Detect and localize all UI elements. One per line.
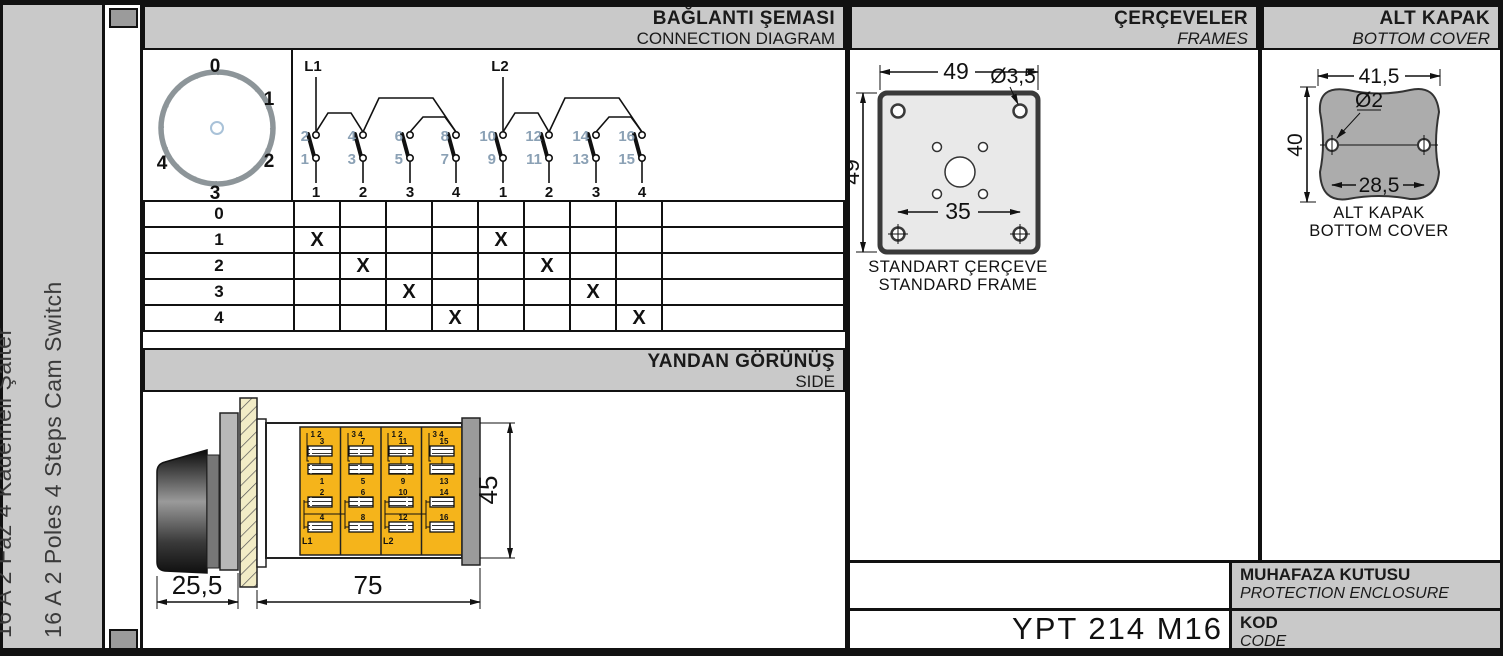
terminal	[349, 446, 373, 456]
frame-caption-tr: STANDART ÇERÇEVE	[868, 258, 1047, 276]
dim-75: 75	[354, 570, 383, 600]
frames-title-tr: ÇERÇEVELER	[852, 8, 1248, 29]
terminal	[308, 497, 332, 507]
terminal	[389, 464, 413, 474]
dim-40: 40	[1284, 133, 1307, 156]
svg-text:8: 8	[361, 513, 366, 522]
contact-schematic: L1 L2 2 1 1 4 3 2 6 5 3 8 7 4	[293, 50, 845, 200]
pilot-hole	[933, 190, 942, 199]
bridge-l1-mid	[410, 117, 456, 132]
bottom-cover-title-en: BOTTOM COVER	[1264, 29, 1490, 48]
bottom-cover-drawing: 41,5 Ø2 40 28,5 ALT KAPAK BOTTOM COVER	[1262, 60, 1500, 260]
code-label-cell: KOD CODE	[1232, 611, 1500, 648]
terminal	[308, 522, 332, 532]
svg-text:13: 13	[440, 477, 449, 486]
svg-text:15: 15	[440, 437, 449, 446]
table-row: 2XX	[144, 253, 844, 279]
dial-pos-3: 3	[210, 183, 221, 200]
dial-pos-0: 0	[210, 56, 221, 77]
step-label: 4	[452, 184, 461, 200]
dim-25-5: 25,5	[172, 570, 223, 600]
cover-caption-en: BOTTOM COVER	[1309, 222, 1449, 240]
table-row: 3XX	[144, 279, 844, 305]
step-label: 2	[545, 184, 553, 200]
binding-mark-bottom	[109, 629, 138, 650]
terminal-label: 12	[525, 128, 542, 145]
feed-label-l1: L1	[304, 58, 322, 75]
svg-text:1: 1	[320, 477, 325, 486]
bridge-l1-high	[363, 98, 456, 132]
svg-text:2: 2	[320, 488, 325, 497]
side-view-drawing: 1 2 3 1 2 4 L1 3 4 7 5 6 8	[143, 392, 845, 648]
corner-hole	[1014, 105, 1027, 118]
dial-diagram: 0 1 2 3 4	[143, 50, 293, 200]
svg-text:L1: L1	[302, 536, 313, 546]
step-table: 0 1XX 2XX 3XX 4XX	[143, 200, 845, 332]
bottom-cover-header: ALT KAPAK BOTTOM COVER	[1262, 5, 1500, 50]
step-label: 2	[359, 184, 367, 200]
svg-text:7: 7	[361, 437, 366, 446]
connection-title-en: CONNECTION DIAGRAM	[145, 29, 835, 48]
svg-text:5: 5	[361, 477, 366, 486]
dim-28-5: 28,5	[1359, 174, 1400, 197]
terminal-label: 9	[488, 151, 496, 168]
dial-face	[164, 75, 270, 181]
frames-header: ÇERÇEVELER FRAMES	[850, 5, 1258, 50]
connection-title-tr: BAĞLANTI ŞEMASI	[145, 8, 835, 29]
terminal	[349, 522, 373, 532]
switch-knob	[157, 450, 207, 573]
svg-text:16: 16	[440, 513, 449, 522]
enclosure-label-tr: MUHAFAZA KUTUSU	[1240, 565, 1500, 585]
dial-pos-1: 1	[264, 89, 275, 110]
terminal-label: 3	[348, 151, 356, 168]
terminal	[349, 497, 373, 507]
frames-title-en: FRAMES	[852, 29, 1248, 48]
terminal	[430, 446, 454, 456]
dial-pos-4: 4	[157, 153, 168, 174]
terminal-label: 8	[441, 128, 449, 145]
terminal	[349, 464, 373, 474]
center-hole	[945, 157, 975, 187]
step-label: 3	[592, 184, 600, 200]
datasheet-page: 16 A 2 Faz 4 Kademeli Şalter 16 A 2 Pole…	[0, 0, 1503, 656]
frame-caption-en: STANDARD FRAME	[879, 276, 1038, 294]
terminal-label: 16	[618, 128, 635, 145]
frame-drawing: 49 Ø3,5 49 35 STANDART ÇERÇEVE STANDARD …	[850, 60, 1258, 305]
side-view-title-tr: YANDAN GÖRÜNÜŞ	[145, 351, 835, 372]
terminal-label: 1	[301, 151, 309, 168]
terminal	[389, 446, 413, 456]
terminal-label: 10	[479, 128, 496, 145]
terminal-label: 6	[395, 128, 403, 145]
dial-pos-2: 2	[264, 151, 275, 172]
table-row: 1XX	[144, 227, 844, 253]
table-row: 4XX	[144, 305, 844, 331]
svg-text:3: 3	[320, 437, 325, 446]
code-label-en: CODE	[1240, 633, 1500, 651]
enclosure-cell: MUHAFAZA KUTUSU PROTECTION ENCLOSURE	[1232, 563, 1500, 608]
terminal-label: 11	[526, 151, 542, 168]
svg-text:11: 11	[399, 437, 408, 446]
step-label: 1	[312, 184, 320, 200]
terminal	[308, 446, 332, 456]
dim-hole-dia: Ø3,5	[990, 65, 1036, 88]
step-label: 3	[406, 184, 414, 200]
code-value: YPT 214 M16	[850, 611, 1229, 648]
terminal	[430, 497, 454, 507]
terminal-label: 2	[301, 128, 309, 145]
product-title-tr: 16 A 2 Faz 4 Kademeli Şalter	[0, 327, 17, 638]
terminal-label: 14	[572, 128, 589, 145]
bridge-l2-high	[549, 98, 642, 132]
terminal	[430, 464, 454, 474]
side-view-header: YANDAN GÖRÜNÜŞ SIDE	[143, 348, 845, 392]
product-title-en: 16 A 2 Poles 4 Steps Cam Switch	[40, 281, 67, 638]
svg-text:L2: L2	[383, 536, 394, 546]
dim-35: 35	[945, 198, 971, 224]
connection-header: BAĞLANTI ŞEMASI CONNECTION DIAGRAM	[143, 5, 845, 50]
terminal-label: 4	[348, 128, 357, 145]
svg-text:10: 10	[399, 488, 408, 497]
dim-49-top: 49	[943, 60, 969, 84]
bottom-cover-title-tr: ALT KAPAK	[1264, 8, 1490, 29]
step-label: 1	[499, 184, 507, 200]
svg-text:14: 14	[440, 488, 449, 497]
pilot-hole	[933, 143, 942, 152]
frame-spacer	[257, 419, 266, 567]
enclosure-label-en: PROTECTION ENCLOSURE	[1240, 585, 1500, 603]
terminal-label: 15	[618, 151, 635, 168]
knob-collar	[207, 455, 219, 568]
terminal	[389, 497, 413, 507]
pilot-hole	[979, 143, 988, 152]
terminal	[430, 522, 454, 532]
side-view-title-en: SIDE	[145, 372, 835, 391]
step-label: 4	[638, 184, 647, 200]
dim-45: 45	[473, 476, 503, 505]
pilot-hole	[979, 190, 988, 199]
terminal	[308, 464, 332, 474]
terminal	[389, 522, 413, 532]
svg-text:6: 6	[361, 488, 366, 497]
code-label-tr: KOD	[1240, 613, 1500, 633]
svg-text:9: 9	[401, 477, 406, 486]
mounting-panel	[240, 398, 257, 587]
dim-hole-dia: Ø2	[1355, 89, 1383, 112]
terminal-label: 13	[572, 151, 589, 168]
terminal-label: 7	[441, 151, 449, 168]
dim-49-left: 49	[850, 159, 864, 185]
table-row: 0	[144, 201, 844, 227]
sidebar: 16 A 2 Faz 4 Kademeli Şalter 16 A 2 Pole…	[3, 5, 105, 648]
dim-41-5: 41,5	[1359, 65, 1400, 88]
front-plate	[220, 413, 238, 570]
cover-caption-tr: ALT KAPAK	[1333, 204, 1425, 222]
binding-mark-top	[109, 8, 138, 28]
terminal-label: 5	[395, 151, 403, 168]
corner-hole	[892, 105, 905, 118]
feed-label-l2: L2	[491, 58, 509, 75]
